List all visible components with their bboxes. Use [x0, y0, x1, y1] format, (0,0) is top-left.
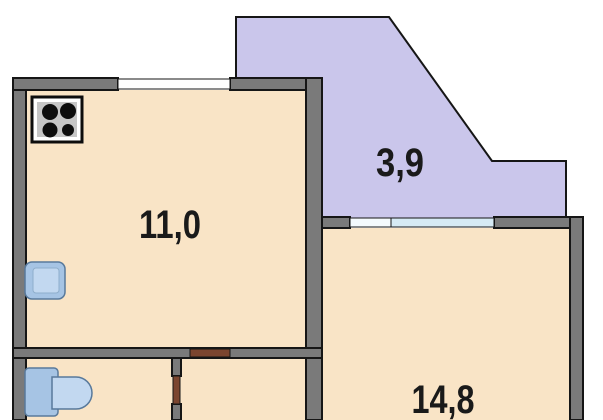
center-partition-wall: [306, 78, 322, 420]
bathroom-wall-upper: [172, 358, 181, 376]
bathroom-wall-lower: [172, 404, 181, 420]
balcony-window: [391, 218, 494, 227]
toilet-bowl: [52, 377, 92, 409]
burner: [62, 124, 74, 136]
sink-basin: [33, 268, 59, 293]
right-wall: [570, 217, 583, 420]
balcony-area-label: 3,9: [376, 141, 424, 185]
kitchen-door: [190, 349, 230, 357]
kitchen-top-wall-left: [13, 78, 118, 90]
burner: [60, 103, 76, 119]
floor-plan-svg: 11,0 3,9 14,8: [0, 0, 603, 420]
stove-icon: [32, 97, 82, 142]
burner: [42, 104, 58, 120]
burner: [43, 123, 58, 138]
balcony-door-opening: [350, 218, 391, 227]
left-wall: [13, 78, 26, 420]
kitchen-bottom-wall: [13, 348, 322, 358]
floor-plan-canvas: 11,0 3,9 14,8: [0, 0, 603, 420]
balcony-sill-wall-left: [322, 217, 350, 228]
sink-icon: [25, 262, 65, 299]
kitchen-area-label: 11,0: [139, 203, 201, 247]
living-room-area-label: 14,8: [412, 378, 475, 420]
kitchen-window: [118, 79, 230, 89]
bathroom-door: [173, 376, 180, 404]
